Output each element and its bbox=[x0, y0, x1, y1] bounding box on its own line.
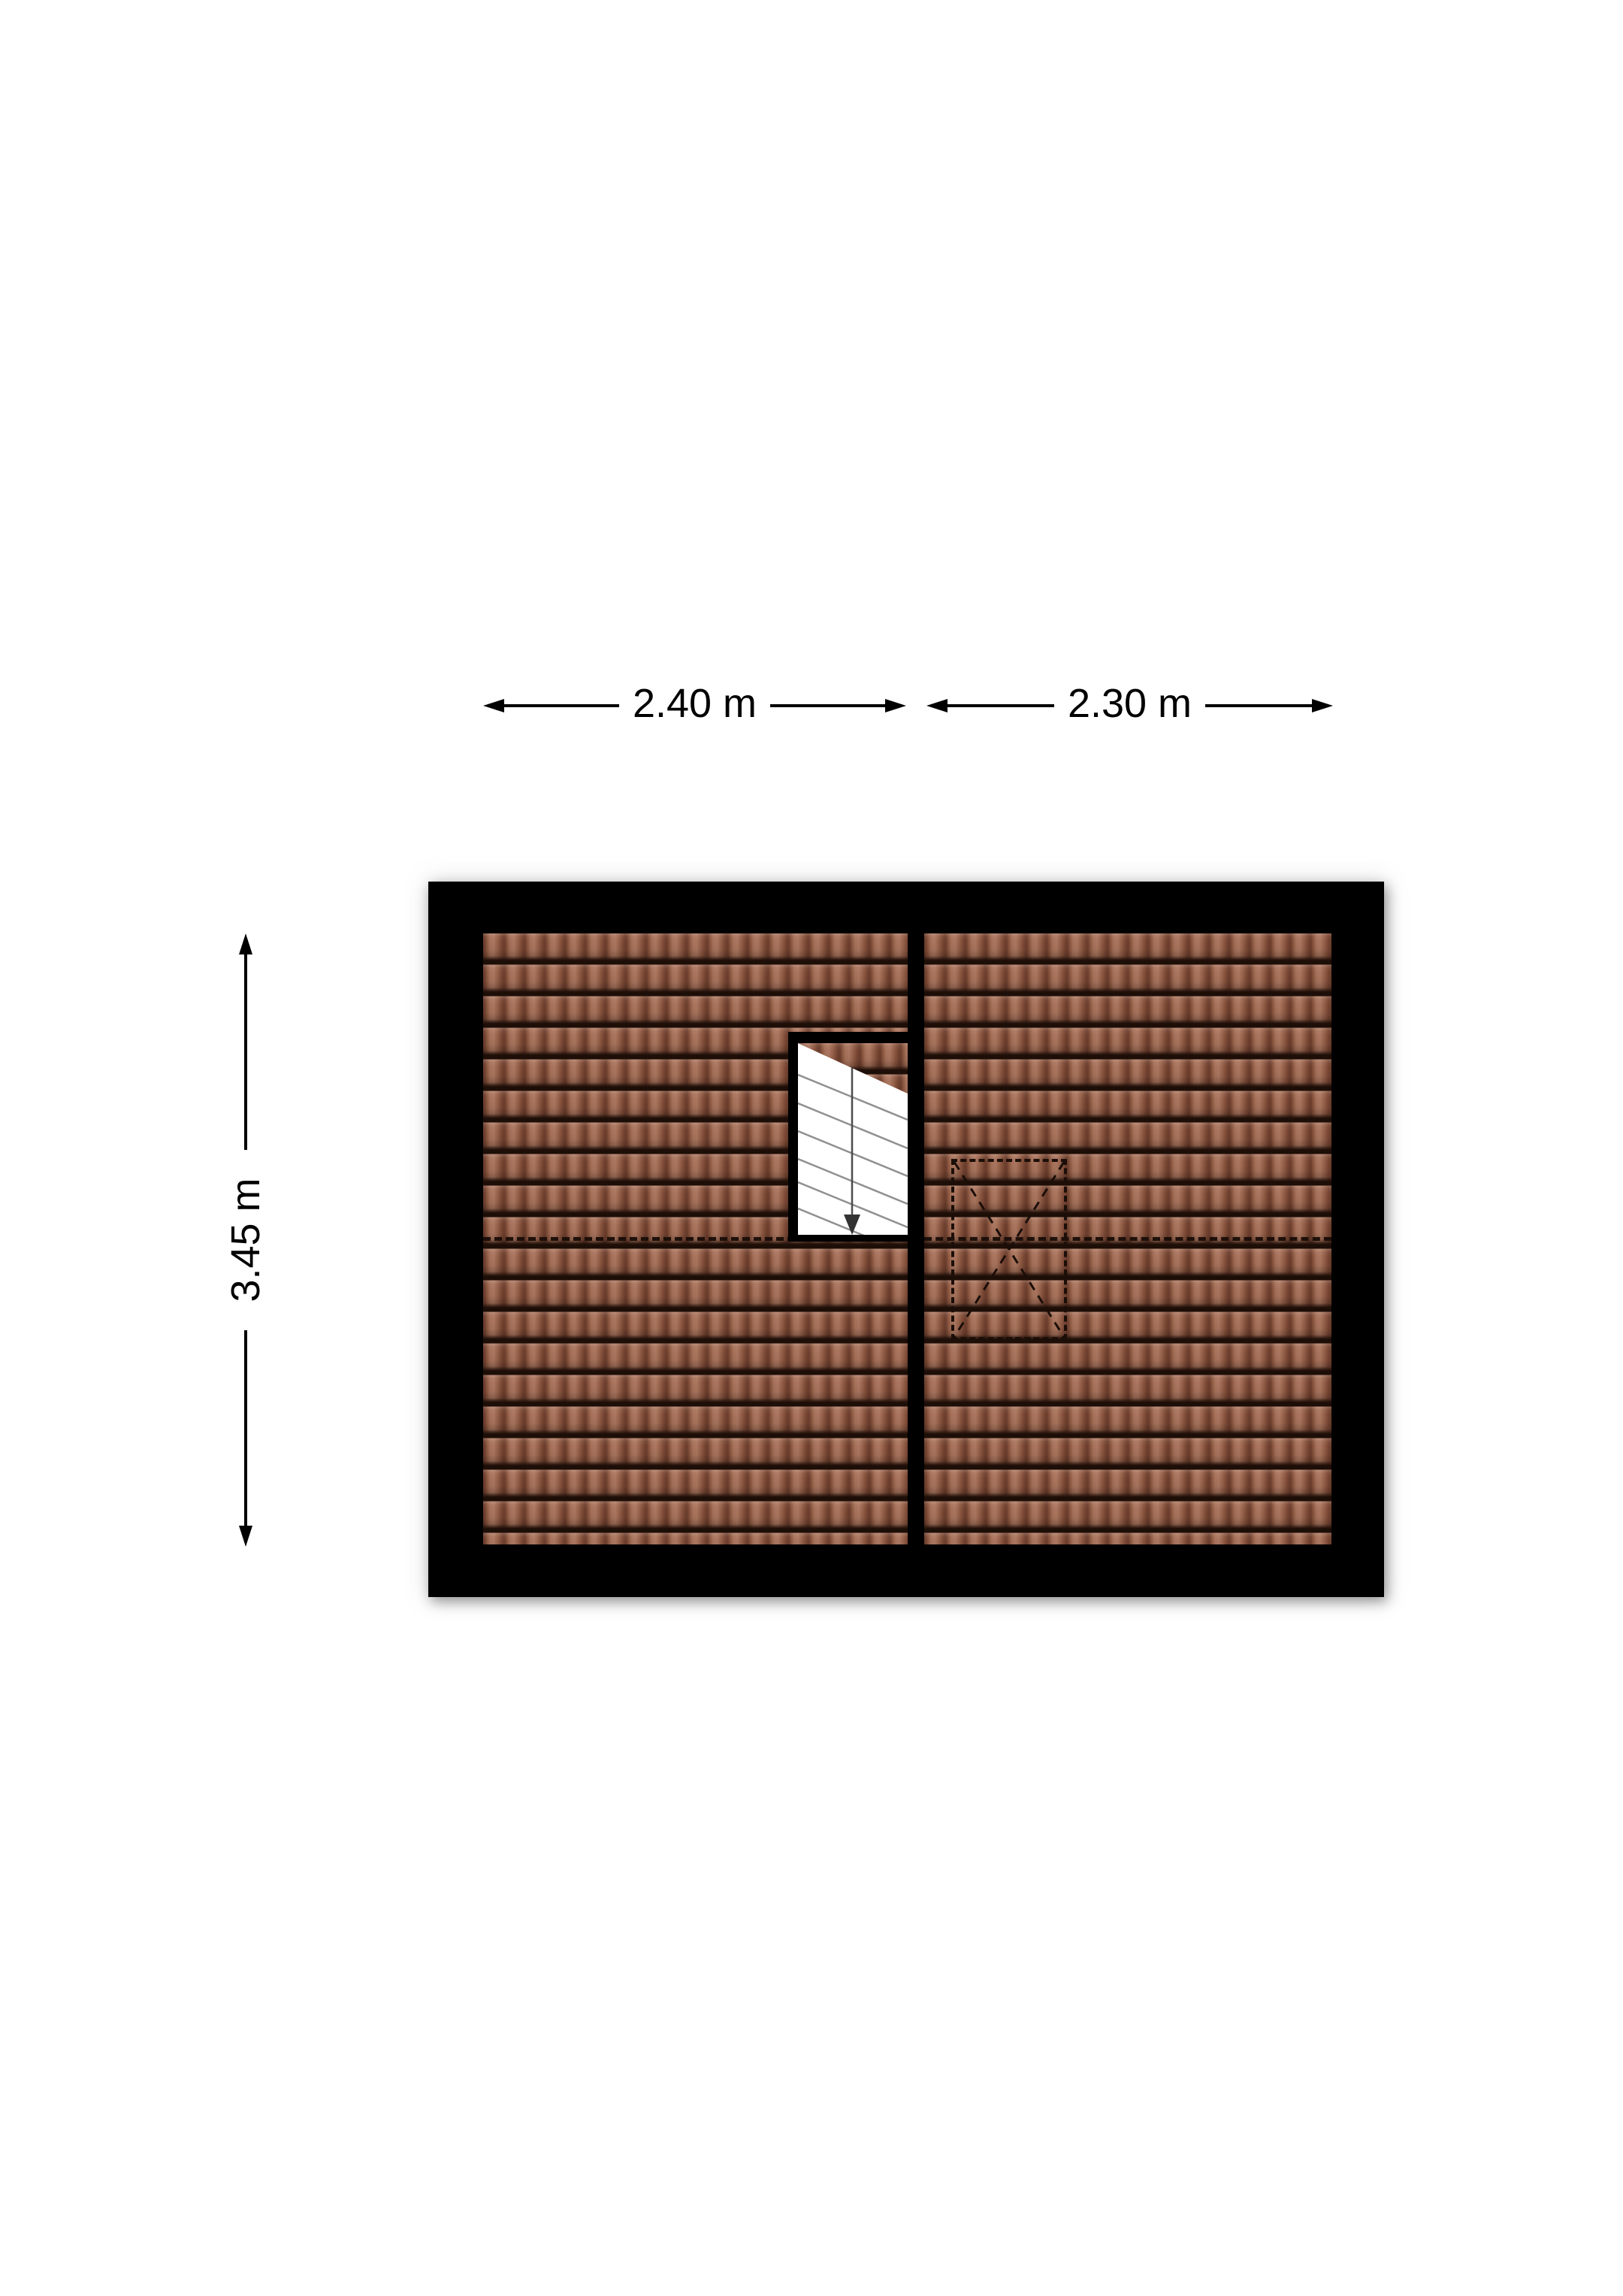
dimension-label: 2.30 m bbox=[1068, 683, 1192, 724]
skylight-diagonals bbox=[954, 1162, 1064, 1337]
arrow-up-icon bbox=[239, 933, 252, 954]
dimension-left-height: 3.45 m bbox=[222, 933, 270, 1547]
floorplan-interior bbox=[483, 933, 1331, 1544]
arrow-left-icon bbox=[926, 699, 948, 712]
arrow-down-icon bbox=[239, 1526, 252, 1547]
dimension-line bbox=[244, 954, 247, 1150]
dimension-line bbox=[770, 704, 885, 707]
dimension-line bbox=[504, 704, 619, 707]
stairwell-interior bbox=[798, 1043, 908, 1235]
dimension-top-right: 2.30 m bbox=[926, 682, 1333, 730]
floorplan-outer-walls bbox=[428, 882, 1384, 1597]
stairwell-opening bbox=[788, 1032, 908, 1242]
arrow-right-icon bbox=[885, 699, 906, 712]
down-arrow-icon bbox=[844, 1215, 860, 1235]
arrow-left-icon bbox=[483, 699, 504, 712]
roof-section-right bbox=[924, 933, 1331, 1544]
skylight-dashed-outline bbox=[951, 1159, 1067, 1340]
dimension-line bbox=[244, 1330, 247, 1526]
dimension-label: 3.45 m bbox=[225, 1178, 266, 1302]
dimension-label: 2.40 m bbox=[633, 683, 757, 724]
arrow-right-icon bbox=[1312, 699, 1333, 712]
dimension-label-box: 3.45 m bbox=[222, 1150, 270, 1330]
dimension-line bbox=[1205, 704, 1312, 707]
dimension-top-left: 2.40 m bbox=[483, 682, 906, 730]
dimension-line bbox=[948, 704, 1054, 707]
